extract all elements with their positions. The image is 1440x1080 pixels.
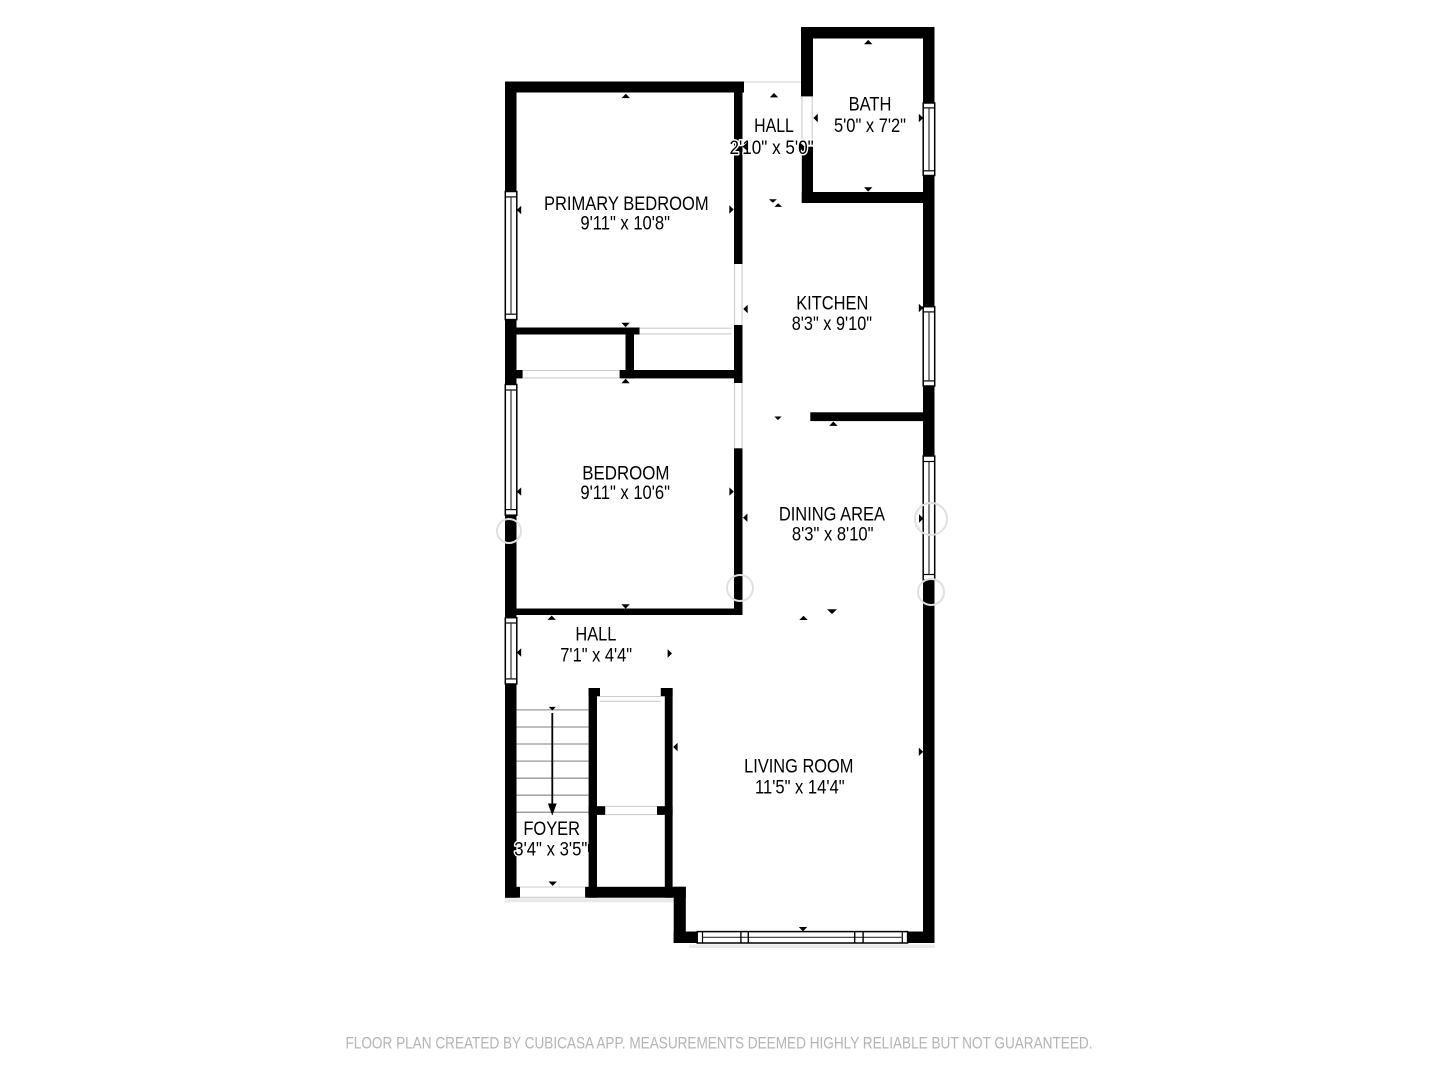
svg-text:PRIMARY BEDROOM: PRIMARY BEDROOM <box>544 194 709 215</box>
svg-text:FLOOR PLAN CREATED BY CUBICASA: FLOOR PLAN CREATED BY CUBICASA APP. MEAS… <box>346 1035 1093 1053</box>
svg-text:3'4" x 3'5": 3'4" x 3'5" <box>514 840 587 861</box>
svg-text:8'3" x 9'10": 8'3" x 9'10" <box>792 314 872 335</box>
svg-text:KITCHEN: KITCHEN <box>796 293 868 314</box>
svg-text:9'11" x 10'8": 9'11" x 10'8" <box>580 214 670 235</box>
svg-text:11'5" x 14'4": 11'5" x 14'4" <box>755 778 845 799</box>
svg-text:FOYER: FOYER <box>523 819 580 840</box>
svg-text:9'11" x 10'6": 9'11" x 10'6" <box>580 483 670 504</box>
svg-text:BATH: BATH <box>849 94 892 115</box>
svg-text:DINING AREA: DINING AREA <box>779 504 885 525</box>
svg-text:BEDROOM: BEDROOM <box>582 464 669 485</box>
svg-text:7'1" x 4'4": 7'1" x 4'4" <box>560 646 632 667</box>
svg-text:5'0" x 7'2": 5'0" x 7'2" <box>834 116 906 137</box>
svg-text:LIVING ROOM: LIVING ROOM <box>744 757 853 778</box>
svg-text:8'3" x 8'10": 8'3" x 8'10" <box>792 525 874 546</box>
svg-text:HALL: HALL <box>754 116 794 137</box>
svg-text:HALL: HALL <box>575 625 616 646</box>
